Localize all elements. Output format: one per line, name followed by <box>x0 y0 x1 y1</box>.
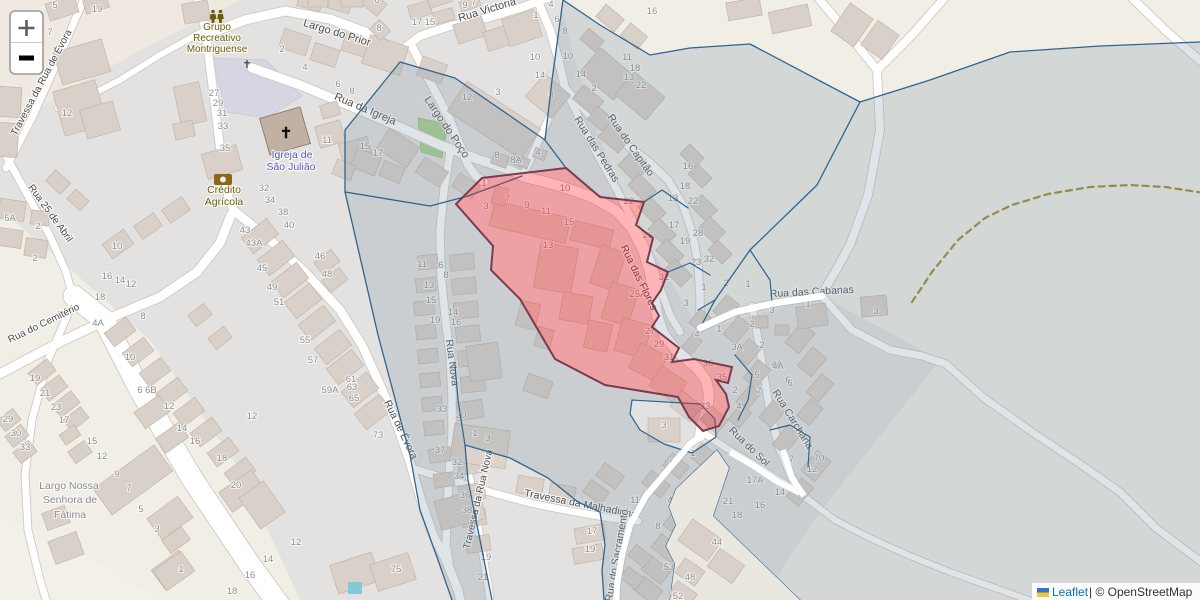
svg-text:17: 17 <box>412 17 423 28</box>
svg-text:43A: 43A <box>246 238 264 249</box>
svg-text:3: 3 <box>154 524 159 535</box>
svg-text:55: 55 <box>300 335 311 346</box>
svg-text:7: 7 <box>126 483 131 494</box>
svg-text:15: 15 <box>425 17 436 28</box>
svg-text:17: 17 <box>59 415 70 426</box>
svg-text:Fátima: Fátima <box>54 509 86 521</box>
svg-text:44: 44 <box>712 537 723 548</box>
svg-text:Crédito: Crédito <box>207 184 241 196</box>
svg-text:4: 4 <box>302 62 307 73</box>
svg-text:Grupo: Grupo <box>203 22 231 33</box>
svg-text:Igreja de: Igreja de <box>272 149 313 161</box>
svg-text:14: 14 <box>263 554 274 565</box>
svg-text:16: 16 <box>245 570 256 581</box>
svg-text:29: 29 <box>3 414 14 425</box>
svg-text:10: 10 <box>112 241 123 252</box>
svg-text:1: 1 <box>533 10 538 21</box>
svg-text:4: 4 <box>548 0 553 10</box>
svg-text:19: 19 <box>585 544 596 555</box>
svg-text:6: 6 <box>554 14 559 25</box>
svg-text:2: 2 <box>32 253 37 264</box>
svg-text:73: 73 <box>373 430 384 441</box>
svg-text:17: 17 <box>587 526 598 537</box>
svg-text:6 6B: 6 6B <box>137 385 157 396</box>
svg-text:16: 16 <box>190 436 201 447</box>
svg-text:Senhora de: Senhora de <box>43 494 97 506</box>
svg-text:11: 11 <box>322 135 332 146</box>
svg-text:21: 21 <box>40 388 51 399</box>
svg-text:18: 18 <box>95 292 106 303</box>
svg-text:10: 10 <box>125 352 136 363</box>
svg-text:6: 6 <box>335 79 340 90</box>
svg-text:34: 34 <box>265 195 276 206</box>
svg-text:2: 2 <box>35 221 40 232</box>
svg-text:75: 75 <box>391 564 402 575</box>
svg-text:14: 14 <box>115 275 126 286</box>
svg-text:32: 32 <box>259 183 270 194</box>
svg-text:49: 49 <box>267 282 278 293</box>
svg-text:31: 31 <box>217 108 228 119</box>
svg-text:19: 19 <box>30 373 41 384</box>
svg-text:São Julião: São Julião <box>266 161 315 173</box>
svg-text:52: 52 <box>673 591 684 600</box>
svg-text:| © OpenStreetMap: | © OpenStreetMap <box>1089 585 1193 599</box>
svg-text:✝: ✝ <box>242 59 251 71</box>
svg-text:16: 16 <box>102 271 113 282</box>
svg-text:Agrícola: Agrícola <box>205 196 244 208</box>
svg-text:5: 5 <box>52 0 57 11</box>
svg-text:59A: 59A <box>322 385 340 396</box>
svg-text:Recreativo: Recreativo <box>193 33 241 44</box>
svg-text:12: 12 <box>62 108 73 119</box>
svg-text:1: 1 <box>178 564 183 575</box>
svg-text:3: 3 <box>661 420 666 431</box>
svg-text:35: 35 <box>220 143 231 154</box>
svg-text:12: 12 <box>247 411 258 422</box>
svg-text:63: 63 <box>347 382 358 393</box>
svg-text:48: 48 <box>685 572 696 583</box>
svg-text:5A: 5A <box>4 213 16 224</box>
svg-text:46: 46 <box>315 251 326 262</box>
svg-text:14: 14 <box>177 423 188 434</box>
svg-text:57: 57 <box>308 355 319 366</box>
svg-text:19: 19 <box>92 4 103 15</box>
svg-text:18: 18 <box>227 586 238 597</box>
svg-text:48: 48 <box>322 269 333 280</box>
svg-text:65: 65 <box>349 393 360 404</box>
svg-text:10: 10 <box>530 52 541 63</box>
svg-text:12: 12 <box>126 279 137 290</box>
svg-text:9: 9 <box>114 469 119 480</box>
svg-text:43: 43 <box>240 225 251 236</box>
svg-text:5: 5 <box>138 504 143 515</box>
svg-text:12: 12 <box>291 537 302 548</box>
svg-text:23: 23 <box>51 402 62 413</box>
svg-text:18: 18 <box>217 453 228 464</box>
svg-text:✝: ✝ <box>280 126 293 142</box>
svg-text:45: 45 <box>257 263 268 274</box>
svg-text:33: 33 <box>20 442 31 453</box>
svg-text:16: 16 <box>647 6 658 17</box>
svg-text:Leaflet: Leaflet <box>1052 585 1089 599</box>
svg-text:15: 15 <box>87 436 98 447</box>
svg-text:3: 3 <box>495 87 500 98</box>
svg-text:20: 20 <box>231 480 242 491</box>
svg-text:6: 6 <box>374 0 379 6</box>
svg-text:2: 2 <box>279 44 284 55</box>
svg-text:12: 12 <box>97 451 108 462</box>
svg-text:8: 8 <box>140 311 145 322</box>
svg-text:Montriguense: Montriguense <box>187 44 248 55</box>
svg-text:7: 7 <box>47 27 52 38</box>
svg-text:40: 40 <box>284 220 295 231</box>
svg-text:12: 12 <box>164 401 175 412</box>
svg-text:Largo Nossa: Largo Nossa <box>39 480 99 492</box>
svg-text:30: 30 <box>11 428 22 439</box>
svg-text:38: 38 <box>278 207 289 218</box>
svg-text:14: 14 <box>535 70 546 81</box>
svg-text:51: 51 <box>274 297 285 308</box>
svg-text:8: 8 <box>376 23 381 34</box>
svg-text:4A: 4A <box>92 318 104 329</box>
svg-text:33: 33 <box>218 121 229 132</box>
